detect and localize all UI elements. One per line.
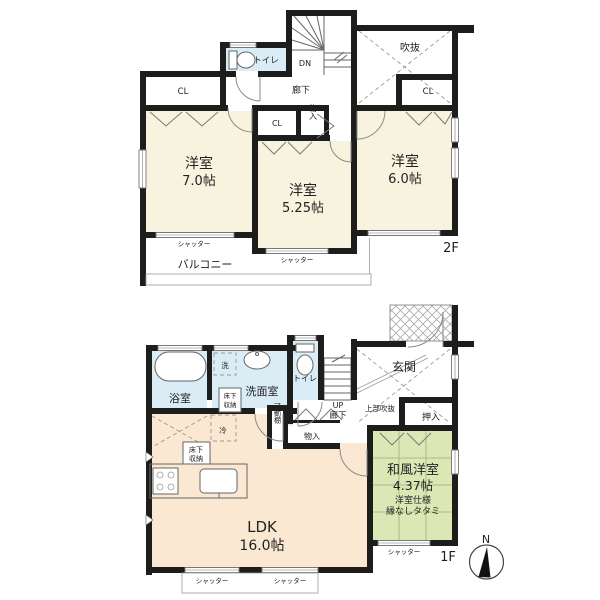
laundry-label: 洗 bbox=[221, 360, 229, 370]
shutter-label-ldk-east: シャッター bbox=[274, 576, 307, 585]
floorplan-drawing: トイレ DN 吹抜 廊下 CL CL CL 物入 洋室 7.0帖 洋室 5.25… bbox=[0, 0, 600, 600]
room-east-size: 6.0帖 bbox=[388, 172, 422, 187]
jp-room-note2: 縁なしタタミ bbox=[386, 505, 440, 517]
room-center-name: 洋室 bbox=[289, 182, 317, 199]
upper-void-label: 上部吹抜 bbox=[365, 403, 395, 413]
floor-label-1f: 1F bbox=[440, 550, 456, 565]
toilet-icon-2f bbox=[229, 51, 255, 69]
storage-2f-label: 物入 bbox=[309, 103, 318, 120]
fridge-label: 冷 bbox=[219, 425, 227, 435]
movable-shelf-label: 可動棚 bbox=[274, 403, 282, 425]
closet-east-label: CL bbox=[423, 87, 434, 97]
shutter-label-2f-center: シャッター bbox=[281, 255, 314, 264]
floorplan-page: トイレ DN 吹抜 廊下 CL CL CL 物入 洋室 7.0帖 洋室 5.25… bbox=[0, 0, 600, 600]
closet-west-label: CL bbox=[178, 87, 189, 97]
room-west-name: 洋室 bbox=[185, 155, 213, 172]
storage-1f-label: 物入 bbox=[304, 431, 320, 441]
underfloor-wash-line1: 床下 bbox=[224, 391, 238, 400]
underfloor-ldk-line2: 収納 bbox=[189, 454, 203, 463]
sink-icon bbox=[244, 351, 270, 369]
jp-room-note1: 洋室仕様 bbox=[395, 494, 431, 506]
balcony-label: バルコニー bbox=[178, 258, 233, 271]
closet-center-label: CL bbox=[272, 119, 283, 128]
void-label: 吹抜 bbox=[400, 41, 420, 54]
stairs-1f bbox=[324, 355, 351, 400]
room-center-size: 5.25帖 bbox=[282, 201, 324, 216]
hallway-1f-label: 廊下 bbox=[329, 410, 347, 421]
stairs-dn-label: DN bbox=[299, 59, 311, 68]
void-x-marks bbox=[359, 31, 450, 103]
toilet-1f-label: トイレ bbox=[293, 374, 317, 383]
stove-icon bbox=[153, 468, 178, 494]
ldk-size: 16.0帖 bbox=[239, 538, 284, 554]
jp-room-name: 和風洋室 bbox=[387, 462, 439, 478]
underfloor-wash-line2: 収納 bbox=[224, 400, 237, 409]
hallway-2f-label: 廊下 bbox=[292, 84, 310, 96]
washroom-label: 洗面室 bbox=[246, 384, 279, 398]
toilet-2f-label: トイレ bbox=[253, 56, 279, 66]
toilet-icon-1f bbox=[296, 344, 314, 375]
jp-room-size: 4.37帖 bbox=[393, 478, 433, 493]
floor-2f: トイレ DN 吹抜 廊下 CL CL CL 物入 洋室 7.0帖 洋室 5.25… bbox=[139, 10, 474, 286]
compass-north-label: N bbox=[482, 533, 490, 546]
bathtub-icon bbox=[155, 352, 206, 381]
oshiire-label: 押入 bbox=[422, 411, 440, 423]
kitchen-sink-icon bbox=[200, 469, 237, 493]
room-east-6 bbox=[357, 111, 452, 230]
room-east-name: 洋室 bbox=[391, 153, 419, 170]
compass: N bbox=[470, 533, 504, 579]
shutter-label-jp-room: シャッター bbox=[388, 547, 421, 556]
floor-label-2f: 2F bbox=[443, 241, 459, 256]
shutter-label-2f-west: シャッター bbox=[178, 239, 211, 248]
bath-label: 浴室 bbox=[169, 391, 191, 405]
stairs-up-label: UP bbox=[333, 401, 344, 410]
floor-1f: 浴室 洗 洗面室 床下 収納 トイレ UP 廊下 玄関 上部吹抜 押入 物入 可… bbox=[146, 305, 474, 593]
underfloor-ldk-line1: 床下 bbox=[189, 445, 203, 454]
room-west-size: 7.0帖 bbox=[182, 174, 216, 189]
ldk-name: LDK bbox=[247, 518, 278, 536]
entrance-label: 玄関 bbox=[392, 359, 416, 374]
shutter-label-ldk-west: シャッター bbox=[196, 576, 229, 585]
